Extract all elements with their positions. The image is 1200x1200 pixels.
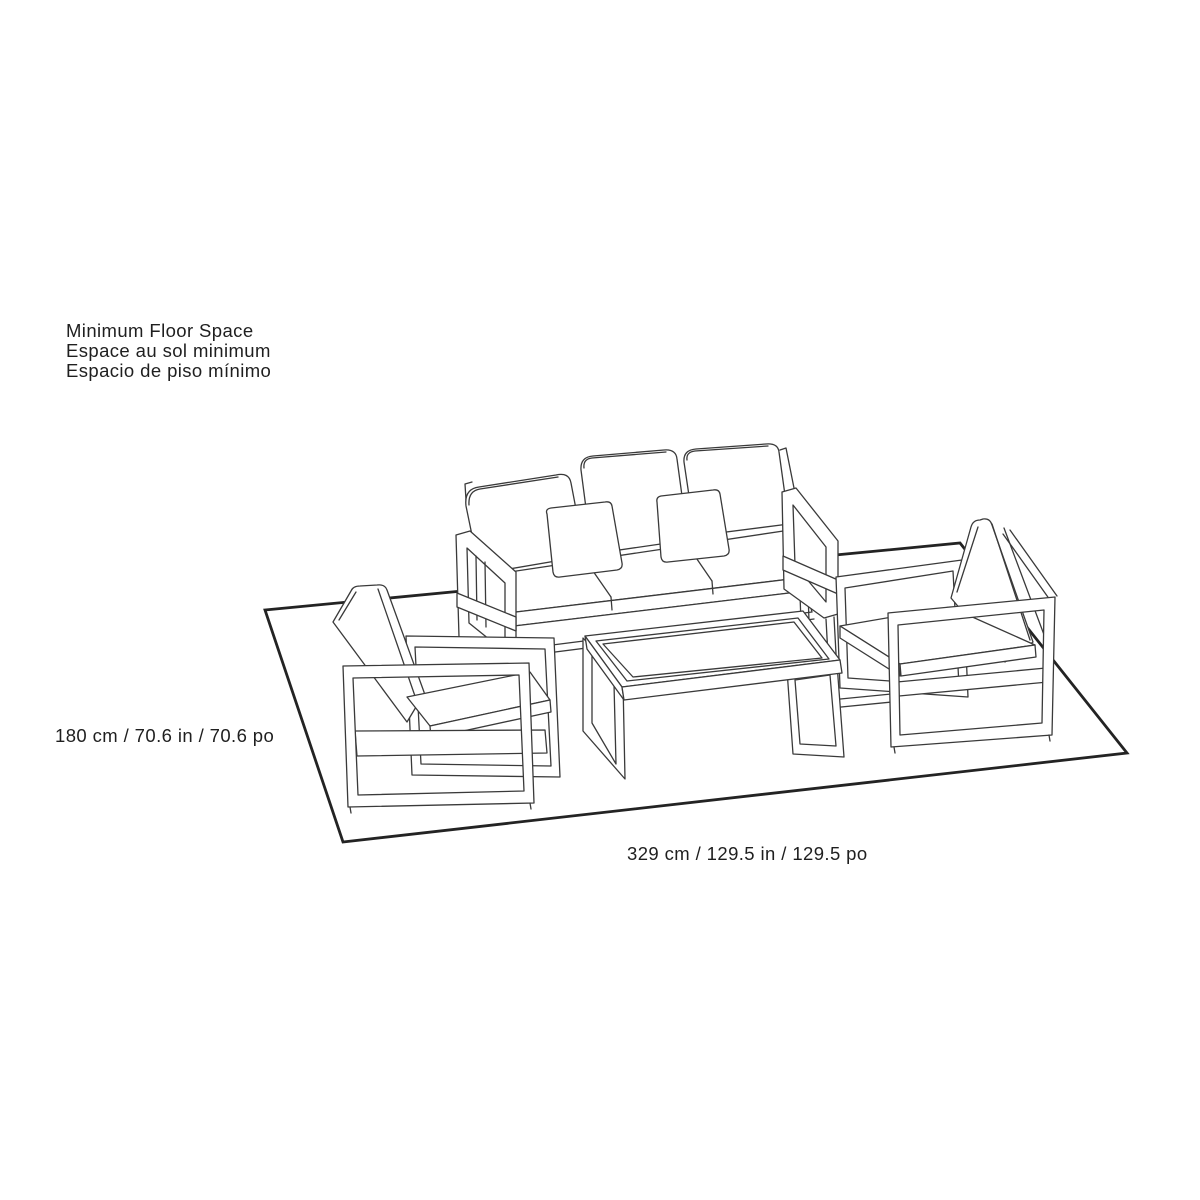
throw-pillow-left	[547, 502, 623, 577]
title-block: Minimum Floor Space Espace au sol minimu…	[66, 320, 271, 381]
diagram-canvas: Minimum Floor Space Espace au sol minimu…	[0, 0, 1200, 1200]
title-line-spanish: Espacio de piso mínimo	[66, 360, 271, 381]
title-line-french: Espace au sol minimum	[66, 340, 271, 361]
width-dimension-label: 329 cm / 129.5 in / 129.5 po	[627, 843, 868, 864]
floor-space-diagram: Minimum Floor Space Espace au sol minimu…	[0, 0, 1200, 1200]
title-line-english: Minimum Floor Space	[66, 320, 254, 341]
throw-pillow-right	[657, 490, 729, 562]
left-armchair-front-slat	[355, 730, 547, 756]
depth-dimension-label: 180 cm / 70.6 in / 70.6 po	[55, 725, 274, 746]
